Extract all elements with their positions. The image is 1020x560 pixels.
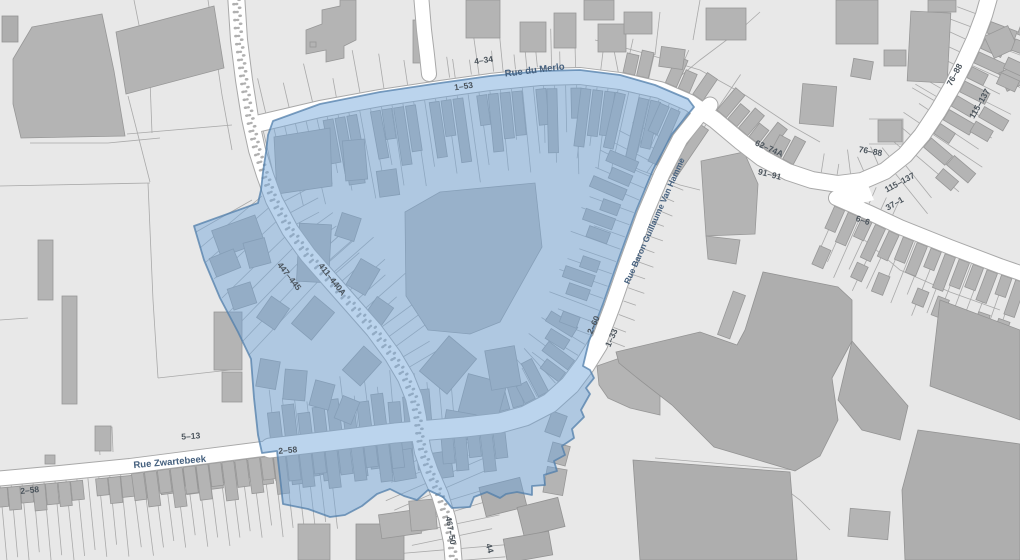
- svg-text:2–58: 2–58: [20, 484, 40, 496]
- svg-text:5–13: 5–13: [181, 430, 201, 441]
- svg-text:2–58: 2–58: [278, 444, 298, 456]
